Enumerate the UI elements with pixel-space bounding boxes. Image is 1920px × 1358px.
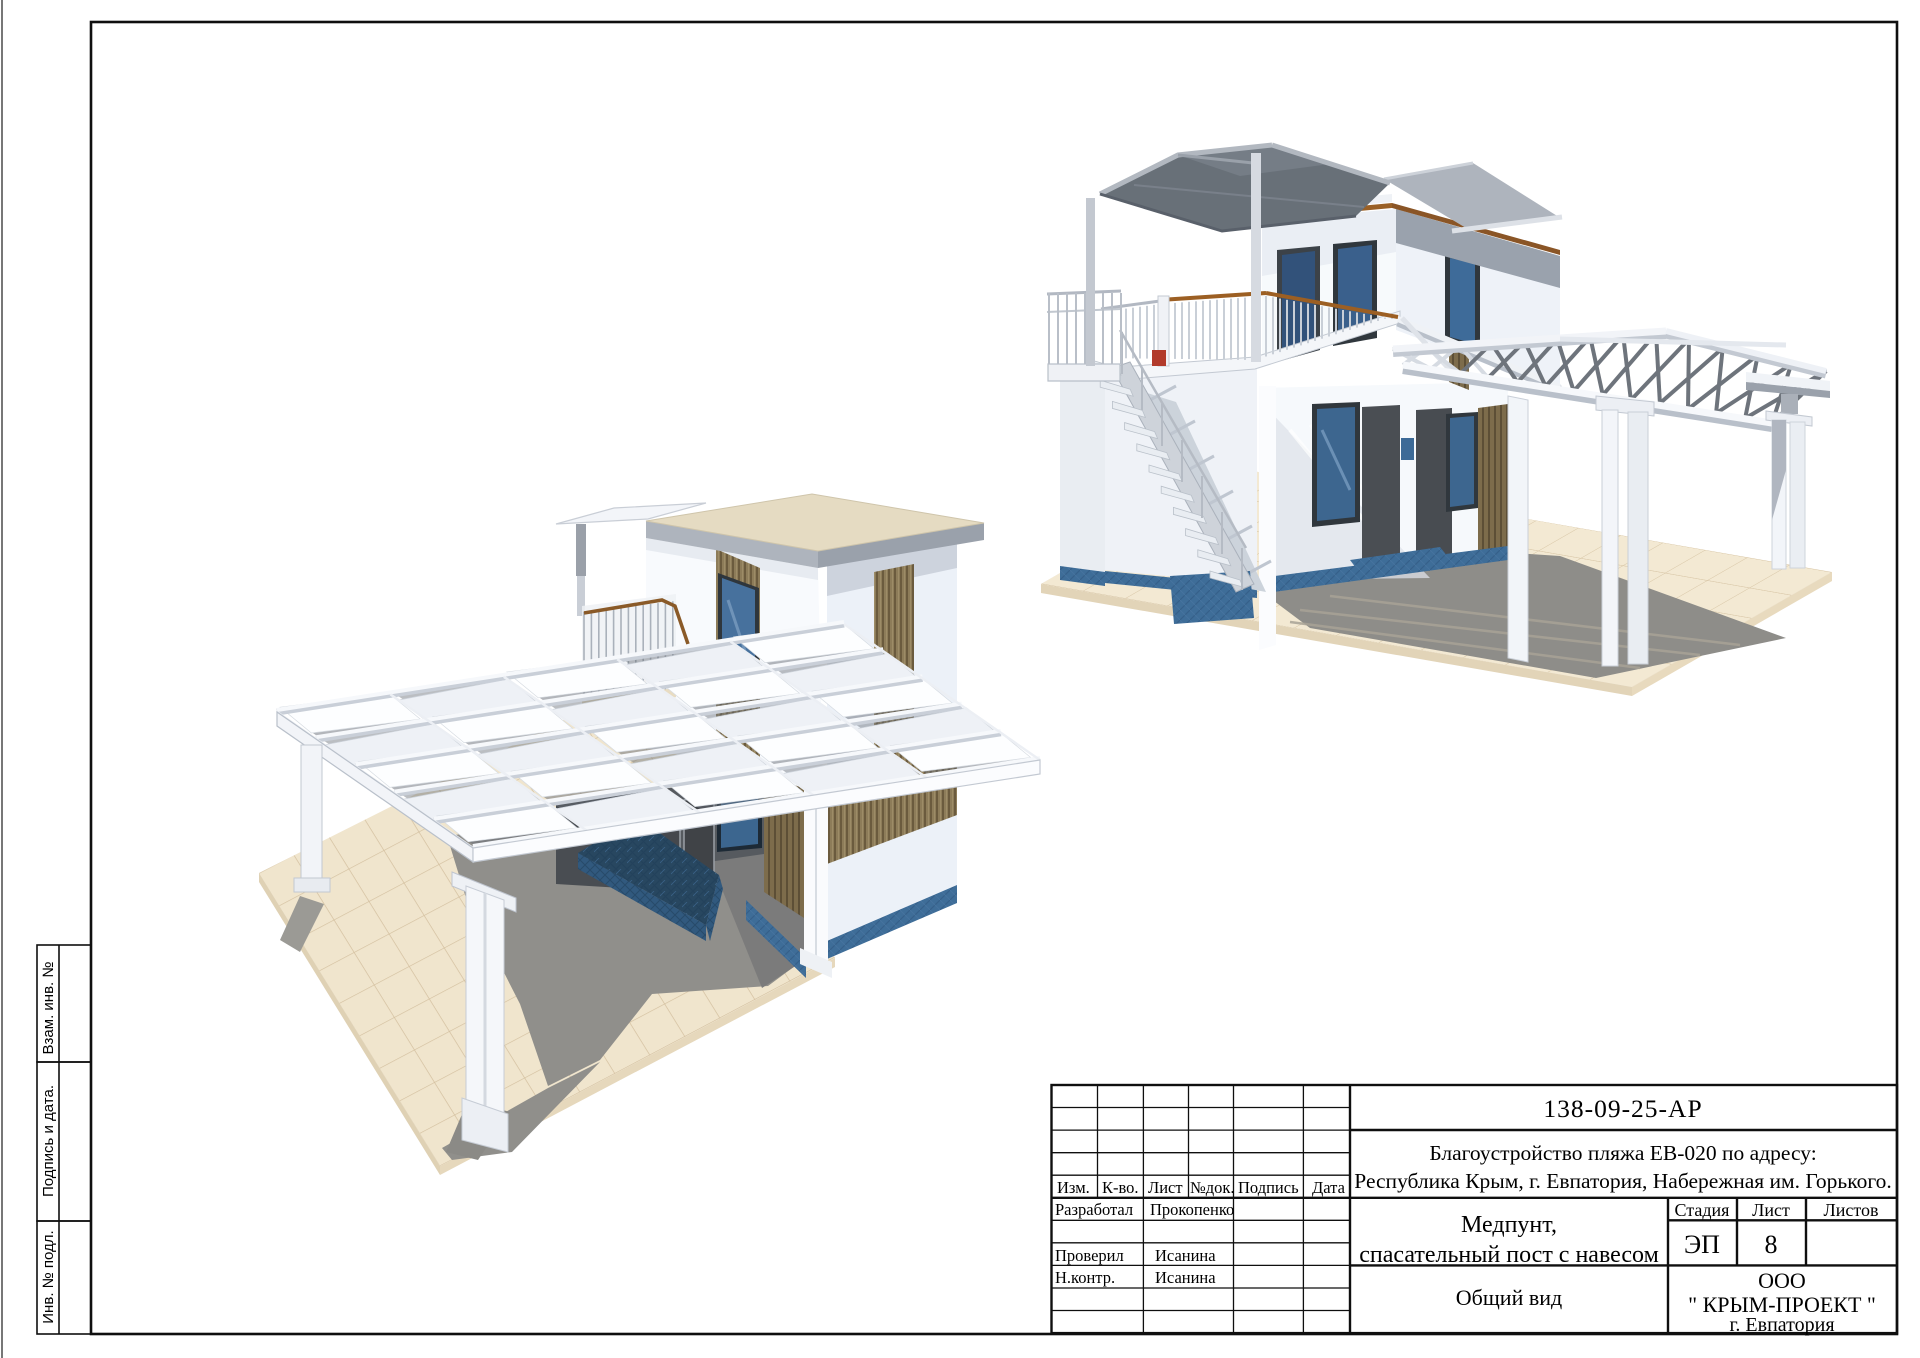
- svg-text:Лист: Лист: [1148, 1178, 1183, 1197]
- svg-text:Республика Крым, г. Евпатори: Республика Крым, г. Евпатория, Набережна…: [1354, 1169, 1891, 1193]
- svg-text:Проверил: Проверил: [1055, 1246, 1124, 1265]
- svg-text:ЭП: ЭП: [1684, 1230, 1720, 1259]
- svg-text:Разработал: Разработал: [1055, 1200, 1133, 1219]
- svg-text:138-09-25-АР: 138-09-25-АР: [1543, 1094, 1702, 1123]
- svg-text:Взам. инв. №: Взам. инв. №: [40, 962, 57, 1055]
- svg-text:Подпись: Подпись: [1238, 1178, 1299, 1197]
- svg-text:Медпунт,: Медпунт,: [1461, 1212, 1557, 1238]
- svg-text:г. Евпатория: г. Евпатория: [1729, 1314, 1834, 1336]
- svg-text:Лист: Лист: [1752, 1200, 1790, 1220]
- svg-text:Изм.: Изм.: [1057, 1178, 1090, 1197]
- svg-text:спасательный пост с навесом: спасательный пост с навесом: [1359, 1242, 1659, 1268]
- svg-text:№док.: №док.: [1190, 1178, 1235, 1197]
- svg-text:Листов: Листов: [1824, 1200, 1879, 1220]
- svg-text:К-во.: К-во.: [1102, 1178, 1139, 1197]
- svg-text:Исанина: Исанина: [1155, 1268, 1216, 1287]
- svg-text:Дата: Дата: [1312, 1178, 1346, 1197]
- svg-text:Благоустройство пляжа ЕВ-020 п: Благоустройство пляжа ЕВ-020 по адресу:: [1429, 1141, 1816, 1165]
- svg-text:8: 8: [1765, 1230, 1778, 1259]
- svg-text:Подпись и дата.: Подпись и дата.: [40, 1085, 57, 1197]
- svg-text:Н.контр.: Н.контр.: [1055, 1268, 1115, 1287]
- svg-text:ООО: ООО: [1758, 1268, 1806, 1293]
- svg-text:Общий вид: Общий вид: [1456, 1285, 1562, 1310]
- svg-text:Прокопенко: Прокопенко: [1150, 1200, 1234, 1219]
- svg-text:Стадия: Стадия: [1675, 1200, 1730, 1220]
- svg-text:Исанина: Исанина: [1155, 1246, 1216, 1265]
- svg-text:Инв. № подл.: Инв. № подл.: [40, 1230, 57, 1323]
